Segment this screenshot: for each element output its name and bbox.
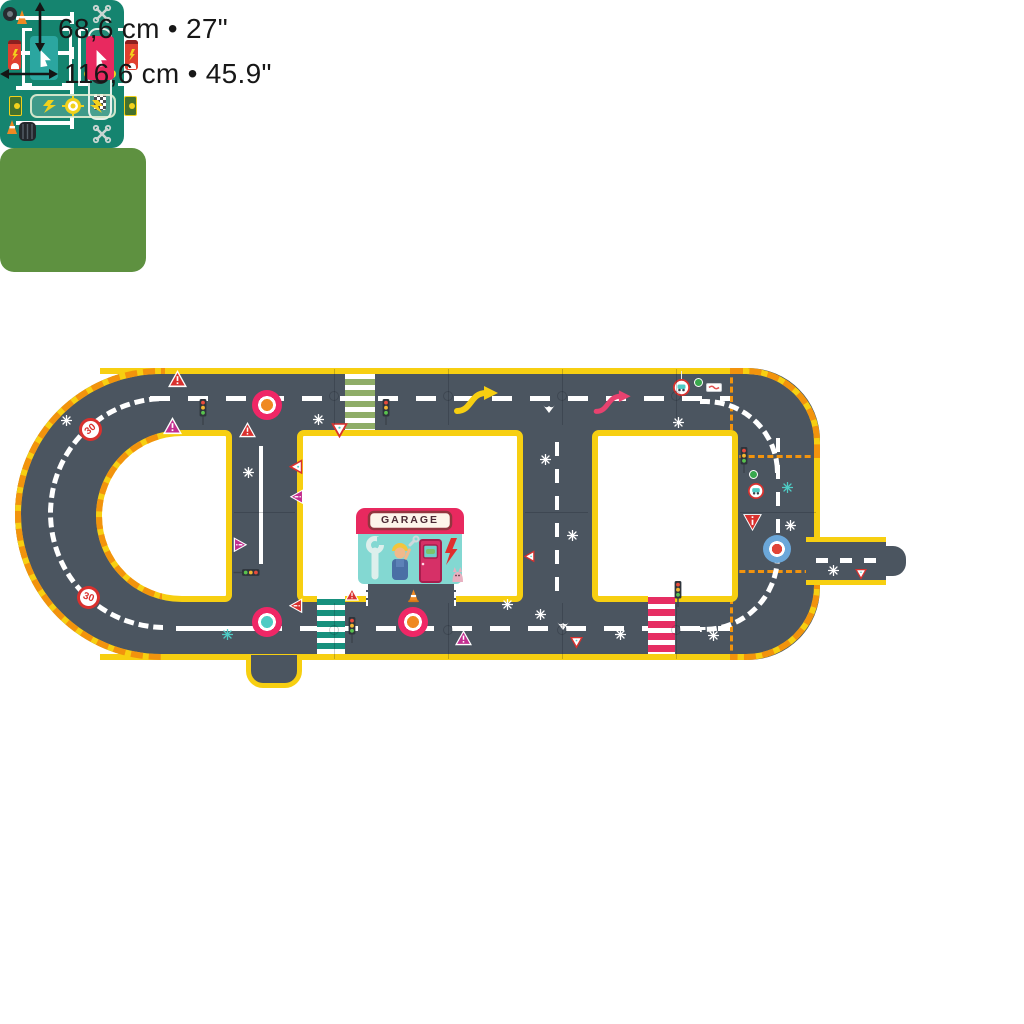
sparkle-icon xyxy=(782,480,793,491)
puzzle-seam xyxy=(448,369,449,425)
sparkle-icon xyxy=(243,465,254,476)
finish-banner xyxy=(30,94,116,118)
sparkle-icon xyxy=(567,528,578,539)
tire-and-cone xyxy=(2,4,30,28)
green-light-sign-icon xyxy=(749,470,758,479)
puzzle-seam xyxy=(448,603,449,659)
traffic-light-icon xyxy=(673,581,683,608)
warning-sign-magenta-icon xyxy=(163,417,182,434)
roundabout-marking xyxy=(398,607,428,637)
sparkle-icon xyxy=(673,415,684,426)
traffic-light-icon xyxy=(233,568,260,578)
curve-arrow-icon xyxy=(592,390,634,416)
solid-line-bottom-left xyxy=(176,626,256,631)
yield-sign-icon xyxy=(570,638,583,650)
sparkle-icon xyxy=(828,563,839,574)
crosswalk-pink xyxy=(648,592,675,654)
yield-sign-icon xyxy=(331,423,348,438)
puzzle-seam xyxy=(234,512,295,513)
warning-sign-icon xyxy=(288,599,302,614)
puzzle-seam xyxy=(740,512,816,513)
yield-sign-icon xyxy=(522,550,533,562)
yield-sign-icon xyxy=(855,571,867,582)
traffic-light-icon xyxy=(739,447,749,474)
height-arrow-icon xyxy=(32,2,48,57)
cone-and-tire-stack xyxy=(4,116,38,144)
sparkle-icon xyxy=(313,412,324,423)
center-line-branch xyxy=(816,558,878,563)
route-bird-marking-icon xyxy=(543,400,555,409)
sparkle-icon xyxy=(785,518,796,529)
curve-arrow-icon xyxy=(452,386,502,416)
traffic-light-icon xyxy=(198,399,208,426)
wrench-icon xyxy=(92,124,112,144)
garage-driveway xyxy=(366,584,456,606)
cone-icon xyxy=(407,588,420,603)
center-line-top xyxy=(150,396,730,401)
badge-icon xyxy=(9,96,22,116)
garage-sign: GARAGE xyxy=(370,511,450,529)
outer-edge-bottom xyxy=(100,654,748,660)
puzzle-seam xyxy=(676,369,677,425)
round-sign-icon xyxy=(748,483,764,499)
roundabout-marking xyxy=(763,535,791,563)
sparkle-icon xyxy=(708,628,719,639)
outer-edge-right xyxy=(814,452,820,537)
sparkle-icon xyxy=(222,627,233,638)
puzzle-tab-parking xyxy=(884,546,906,576)
sparkle-icon xyxy=(535,607,546,618)
puzzle-seam xyxy=(334,603,335,659)
puzzle-tab-charging xyxy=(246,655,302,688)
crosswalk-green xyxy=(345,374,375,430)
warning-sign-magenta-icon xyxy=(289,490,303,505)
height-label: 68,6 cm • 27" xyxy=(58,13,228,45)
road-track: GARAGE 3030 xyxy=(0,0,1024,1024)
warning-sign-icon xyxy=(345,588,359,601)
center-line-road2 xyxy=(555,442,559,594)
green-light-sign-icon xyxy=(694,378,703,387)
puzzle-seam xyxy=(334,369,335,425)
badge-icon xyxy=(124,96,137,116)
width-label: 116,6 cm • 45.9" xyxy=(64,58,272,90)
warning-sign-icon xyxy=(239,422,256,437)
puzzle-seam xyxy=(562,369,563,425)
traffic-light-icon xyxy=(347,617,357,644)
outer-edge-top xyxy=(100,368,748,374)
puzzle-seam xyxy=(676,603,677,659)
puzzle-seam xyxy=(562,603,563,659)
warning-sign-magenta-icon xyxy=(455,630,472,645)
garage-door-icon xyxy=(420,540,441,582)
garage-building: GARAGE xyxy=(356,502,464,586)
roundabout-marking xyxy=(252,607,282,637)
yield-sign-icon xyxy=(288,460,302,475)
warning-sign-magenta-icon xyxy=(233,538,247,553)
yield-warning-sign-icon xyxy=(743,514,762,531)
sparkle-icon xyxy=(502,597,513,608)
info-plate-sign-icon xyxy=(706,379,722,388)
product-image: GARAGE 3030 xyxy=(0,0,1024,1024)
traffic-light-icon xyxy=(381,399,391,426)
sun-emblem-icon xyxy=(62,96,84,116)
sparkle-icon xyxy=(615,627,626,638)
crosswalk-teal xyxy=(317,594,345,654)
sparkle-icon xyxy=(540,452,551,463)
puzzle-seam xyxy=(525,512,588,513)
solid-line-road1 xyxy=(259,446,263,564)
roundabout-marking xyxy=(252,390,282,420)
warning-sign-icon xyxy=(168,370,187,387)
sparkle-icon xyxy=(61,413,72,424)
width-arrow-icon xyxy=(0,66,58,87)
